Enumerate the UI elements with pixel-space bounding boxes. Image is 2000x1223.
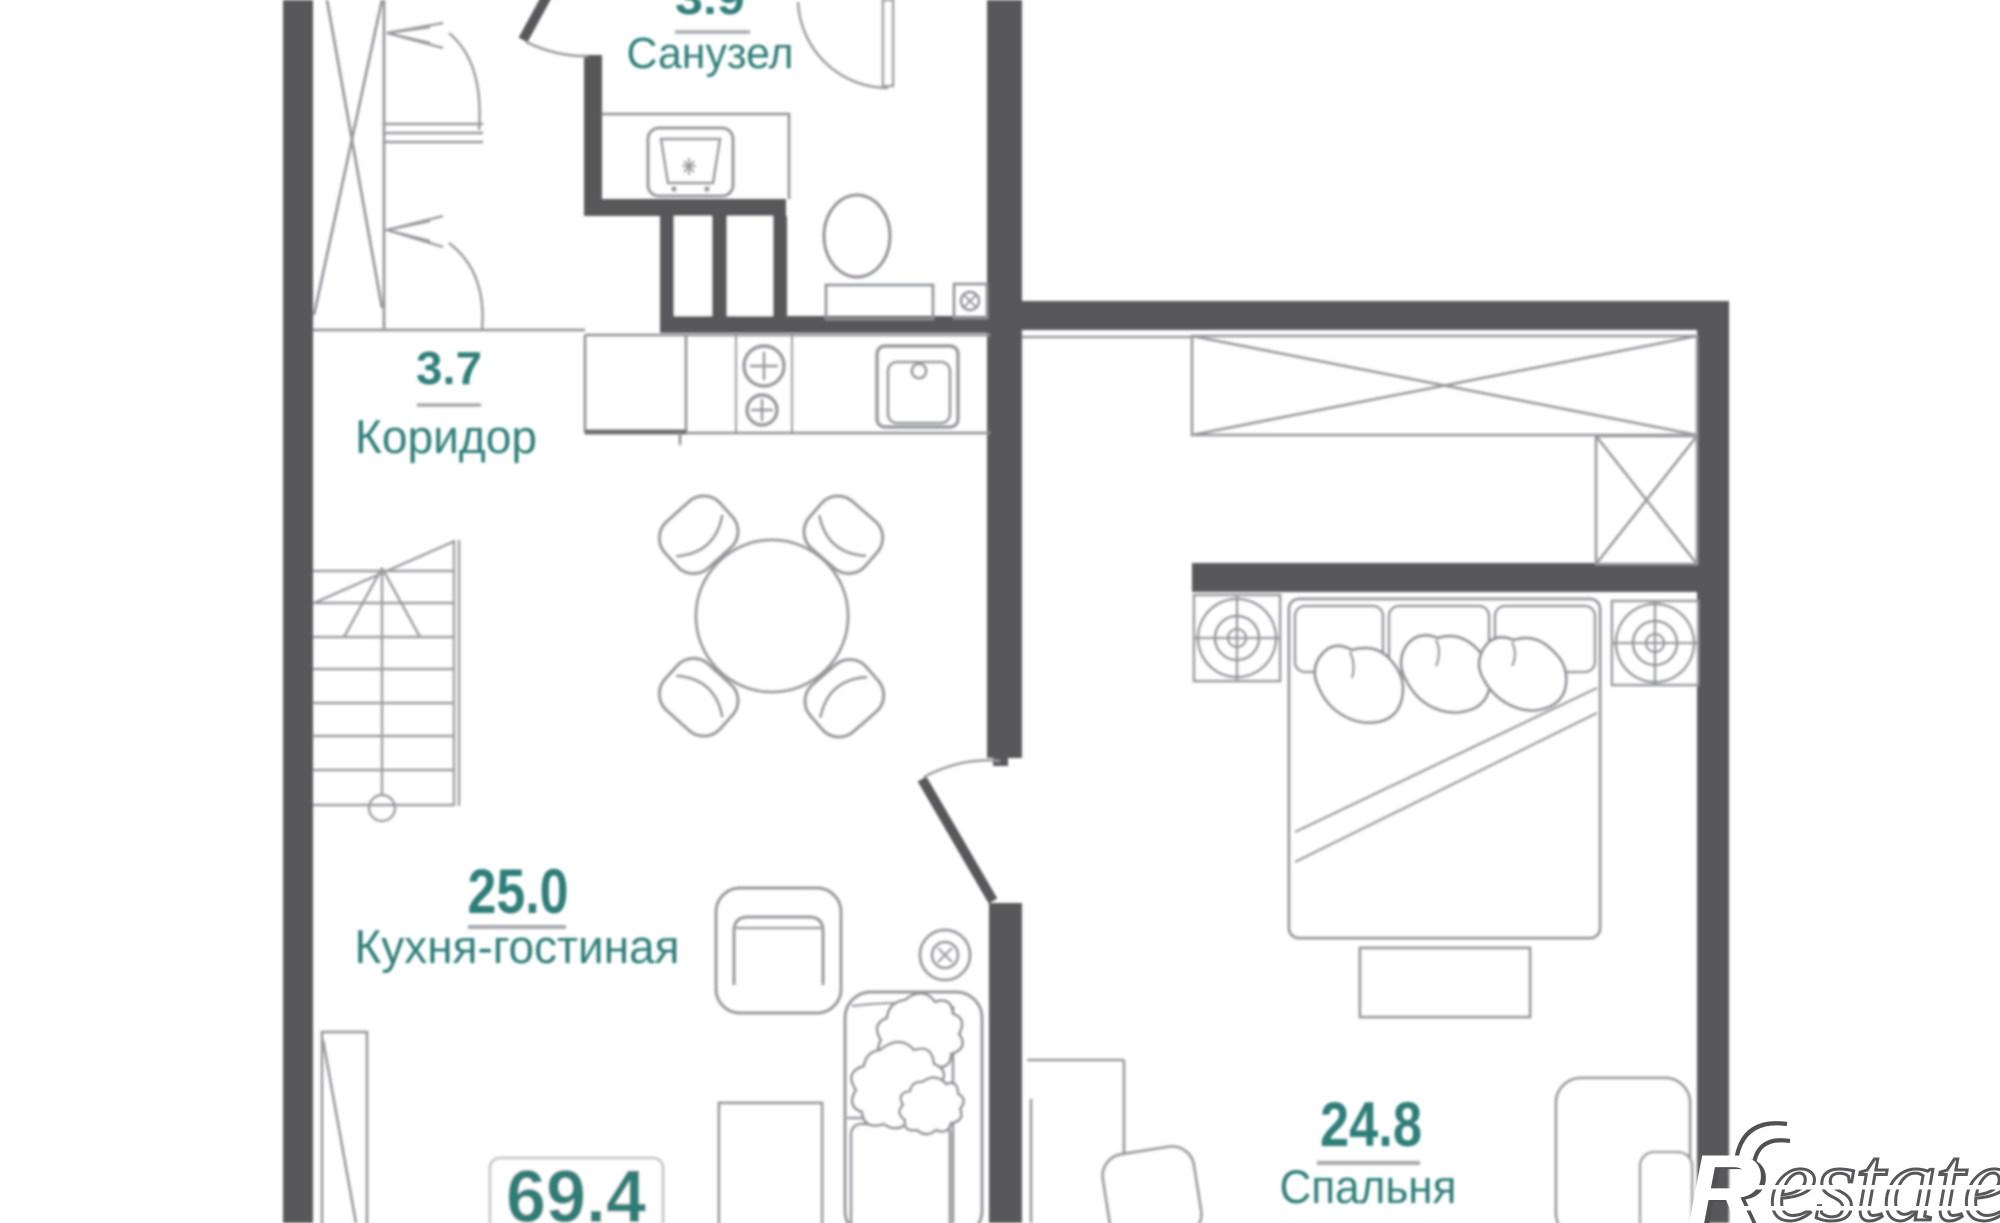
svg-text:Коридор: Коридор: [355, 410, 537, 463]
svg-text:69.4: 69.4: [506, 1155, 646, 1223]
svg-text:3.9: 3.9: [675, 0, 745, 24]
svg-text:Спальня: Спальня: [1280, 1160, 1457, 1213]
svg-text:3.7: 3.7: [416, 342, 482, 394]
svg-text:Санузел: Санузел: [627, 29, 794, 78]
svg-text:25.0: 25.0: [468, 857, 569, 927]
svg-text:Кухня-гостиная: Кухня-гостиная: [355, 920, 680, 973]
svg-text:24.8: 24.8: [1320, 1090, 1422, 1160]
